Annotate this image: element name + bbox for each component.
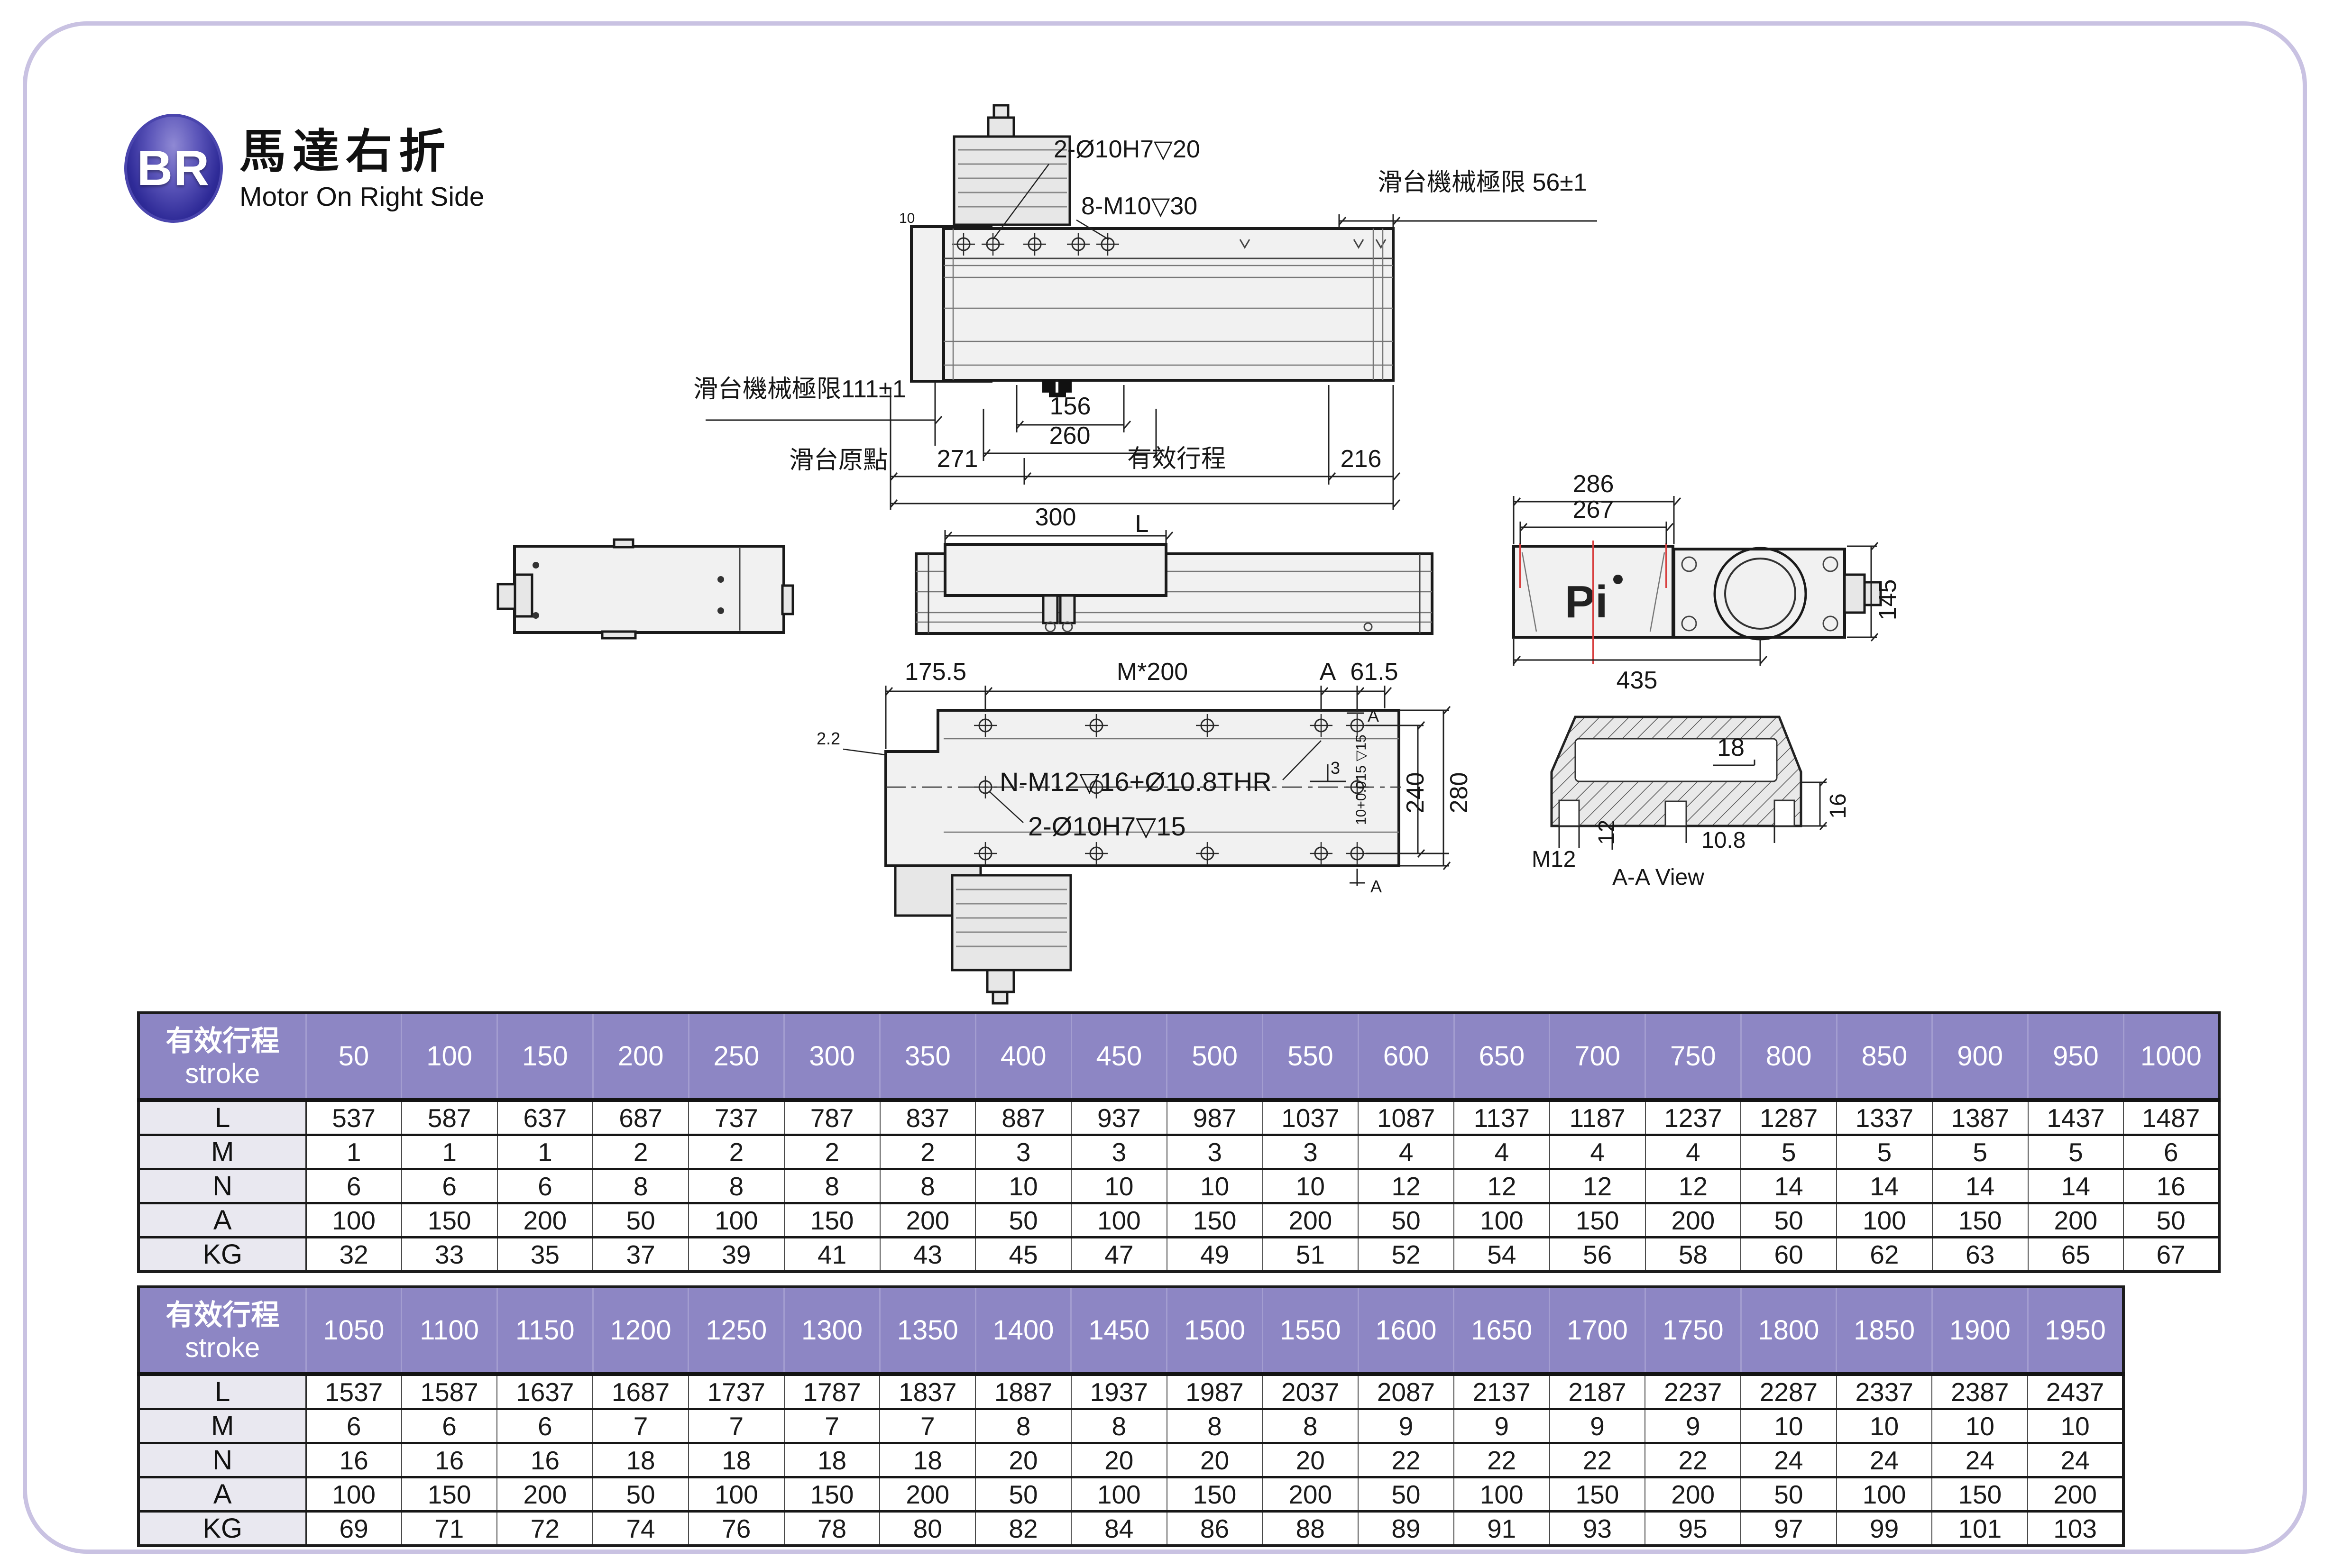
row-label: M	[138, 1409, 306, 1443]
table-cell: 150	[1932, 1203, 2028, 1238]
table-cell: 8	[593, 1169, 689, 1203]
table-cell: 150	[784, 1203, 880, 1238]
table-cell: 2337	[1837, 1374, 1932, 1409]
table-cell: 10	[1167, 1169, 1263, 1203]
table-cell: 7	[593, 1409, 689, 1443]
table-row: L153715871637168717371787183718871937198…	[138, 1374, 2123, 1409]
dim-m12: M12	[1532, 847, 1576, 872]
table-cell: 200	[497, 1203, 593, 1238]
table-cell: 1837	[880, 1374, 975, 1409]
stroke-column-header: 1350	[880, 1287, 975, 1374]
table-cell: 2	[784, 1135, 880, 1169]
table-cell: 9	[1358, 1409, 1454, 1443]
stroke-column-header: 100	[402, 1013, 497, 1100]
row-label: KG	[138, 1238, 306, 1272]
table-cell: 2237	[1645, 1374, 1741, 1409]
stroke-column-header: 400	[975, 1013, 1071, 1100]
table-cell: 14	[1837, 1169, 1932, 1203]
stroke-column-header: 1700	[1550, 1287, 1645, 1374]
table-cell: 24	[2028, 1443, 2123, 1477]
row-label: L	[138, 1374, 306, 1409]
table-cell: 62	[1837, 1238, 1932, 1272]
table-cell: 1	[306, 1135, 402, 1169]
table-cell: 2437	[2028, 1374, 2123, 1409]
table-cell: 1037	[1263, 1100, 1359, 1135]
section-a-label: A	[1320, 658, 1336, 686]
table-cell: 4	[1358, 1135, 1454, 1169]
table-cell: 2287	[1741, 1374, 1837, 1409]
table-cell: 9	[1550, 1409, 1645, 1443]
table-cell: 2037	[1262, 1374, 1358, 1409]
dim-16: 16	[1826, 793, 1851, 818]
table-cell: 200	[497, 1477, 593, 1512]
table-row: A100150200501001502005010015020050100150…	[138, 1203, 2219, 1238]
table-cell: 69	[306, 1512, 402, 1546]
table-cell: 50	[593, 1203, 689, 1238]
table-cell: 150	[1167, 1477, 1263, 1512]
table-row: M66677778888999910101010	[138, 1409, 2123, 1443]
table-cell: 3	[1167, 1135, 1263, 1169]
table-cell: 987	[1167, 1100, 1263, 1135]
table-cell: 200	[2028, 1203, 2124, 1238]
table-cell: 737	[689, 1100, 784, 1135]
table-cell: 10	[1263, 1169, 1359, 1203]
table-cell: 14	[2028, 1169, 2124, 1203]
table-cell: 1987	[1167, 1374, 1263, 1409]
table-cell: 89	[1358, 1512, 1454, 1546]
stroke-column-header: 1750	[1645, 1287, 1741, 1374]
table-cell: 97	[1741, 1512, 1837, 1546]
dowel-callout: 2-Ø10H7▽15	[1028, 811, 1186, 841]
table-cell: 12	[1550, 1169, 1645, 1203]
table-cell: 18	[880, 1443, 975, 1477]
table-cell: 6	[306, 1409, 402, 1443]
table-cell: 16	[306, 1443, 402, 1477]
table-cell: 1637	[497, 1374, 593, 1409]
technical-drawings: 10 2-Ø10H7▽20 8-M10▽30 滑台機械極限 56±1 滑台機械極…	[0, 0, 2352, 1005]
table-cell: 100	[1454, 1203, 1550, 1238]
table-cell: 150	[402, 1477, 497, 1512]
stroke-column-header: 1600	[1358, 1287, 1454, 1374]
table-cell: 43	[880, 1238, 976, 1272]
stroke-column-header: 1650	[1454, 1287, 1550, 1374]
table-cell: 91	[1454, 1512, 1550, 1546]
table-cell: 100	[306, 1477, 402, 1512]
table-cell: 537	[306, 1100, 402, 1135]
table-cell: 1437	[2028, 1100, 2124, 1135]
table-cell: 4	[1550, 1135, 1645, 1169]
table-cell: 50	[2123, 1203, 2219, 1238]
table-cell: 50	[593, 1477, 689, 1512]
middle-side-view-drawing: 300	[916, 504, 1432, 633]
table-cell: 637	[497, 1100, 593, 1135]
table-cell: 837	[880, 1100, 976, 1135]
table-cell: 5	[2028, 1135, 2124, 1169]
table-cell: 76	[689, 1512, 784, 1546]
table-cell: 35	[497, 1238, 593, 1272]
table-row: N16161618181818202020202222222224242424	[138, 1443, 2123, 1477]
table-cell: 8	[880, 1169, 976, 1203]
stroke-column-header: 1450	[1071, 1287, 1167, 1374]
stroke-column-header: 300	[784, 1013, 880, 1100]
table-cell: 200	[1263, 1203, 1359, 1238]
table-cell: 65	[2028, 1238, 2124, 1272]
table-cell: 20	[1262, 1443, 1358, 1477]
table-cell: 41	[784, 1238, 880, 1272]
dim-2-2: 2.2	[817, 729, 840, 748]
table-cell: 22	[1358, 1443, 1454, 1477]
table-cell: 50	[1358, 1477, 1454, 1512]
section-a-marker-top: A	[1368, 706, 1379, 725]
dim-300: 300	[1035, 504, 1076, 531]
table-cell: 45	[975, 1238, 1071, 1272]
table-cell: 54	[1454, 1238, 1550, 1272]
table-cell: 22	[1454, 1443, 1550, 1477]
table-cell: 82	[975, 1512, 1071, 1546]
stroke-column-header: 1400	[975, 1287, 1071, 1374]
table-cell: 10	[975, 1169, 1071, 1203]
table-row: N666888810101010121212121414141416	[138, 1169, 2219, 1203]
table-cell: 33	[402, 1238, 497, 1272]
table-cell: 150	[1550, 1477, 1645, 1512]
aa-section-view-drawing: 18 16 M12 12 10.8 A-A View	[1532, 717, 1851, 890]
table-cell: 100	[1071, 1477, 1167, 1512]
stroke-column-header: 150	[497, 1013, 593, 1100]
table-cell: 8	[784, 1169, 880, 1203]
row-label: KG	[138, 1512, 306, 1546]
table-row: A100150200501001502005010015020050100150…	[138, 1477, 2123, 1512]
table-cell: 16	[497, 1443, 593, 1477]
table-cell: 20	[1071, 1443, 1167, 1477]
table-cell: 587	[402, 1100, 497, 1135]
table-cell: 24	[1837, 1443, 1932, 1477]
table-cell: 6	[497, 1409, 593, 1443]
table-cell: 8	[1071, 1409, 1167, 1443]
table-cell: 18	[784, 1443, 880, 1477]
table-cell: 9	[1645, 1409, 1741, 1443]
table-cell: 150	[1550, 1203, 1645, 1238]
table-cell: 71	[402, 1512, 497, 1546]
table-cell: 12	[1454, 1169, 1550, 1203]
table-cell: 10	[1741, 1409, 1837, 1443]
row-label: N	[138, 1443, 306, 1477]
table-cell: 72	[497, 1512, 593, 1546]
table-cell: 95	[1645, 1512, 1741, 1546]
end-view-drawing: Pi 286 267 435 145	[1514, 470, 1902, 694]
table-cell: 50	[1741, 1203, 1837, 1238]
table-cell: 37	[593, 1238, 689, 1272]
tolerance-note: 10+0.015 ▽15	[1353, 734, 1369, 825]
table-cell: 52	[1358, 1238, 1454, 1272]
table-cell: 2137	[1454, 1374, 1550, 1409]
table-cell: 60	[1741, 1238, 1837, 1272]
stroke-column-header: 1050	[306, 1287, 402, 1374]
aa-view-caption: A-A View	[1612, 865, 1704, 890]
dim-61-5: 61.5	[1350, 658, 1398, 686]
table-cell: 22	[1550, 1443, 1645, 1477]
table-row: KG69717274767880828486888991939597991011…	[138, 1512, 2123, 1546]
table-cell: 84	[1071, 1512, 1167, 1546]
table-cell: 6	[497, 1169, 593, 1203]
table-cell: 10	[2028, 1409, 2123, 1443]
table-cell: 7	[689, 1409, 784, 1443]
dim-260: 260	[1049, 422, 1091, 449]
table-cell: 1737	[689, 1374, 784, 1409]
table-cell: 47	[1071, 1238, 1167, 1272]
table-cell: 2	[880, 1135, 976, 1169]
table-cell: 1087	[1358, 1100, 1454, 1135]
hole-callout-2: 8-M10▽30	[1081, 193, 1197, 220]
stroke-column-header: 1500	[1167, 1287, 1263, 1374]
stroke-column-header: 1250	[689, 1287, 784, 1374]
dim-156: 156	[1050, 393, 1091, 420]
stroke-header-cell: 有效行程stroke	[138, 1287, 306, 1374]
table-cell: 74	[593, 1512, 689, 1546]
table-cell: 5	[1741, 1135, 1837, 1169]
dim-145: 145	[1874, 579, 1902, 621]
table-cell: 6	[402, 1409, 497, 1443]
table-cell: 6	[306, 1169, 402, 1203]
dim-267: 267	[1573, 496, 1614, 523]
table-cell: 51	[1263, 1238, 1359, 1272]
table-cell: 100	[689, 1203, 784, 1238]
table-cell: 50	[1358, 1203, 1454, 1238]
table-cell: 39	[689, 1238, 784, 1272]
table-cell: 22	[1645, 1443, 1741, 1477]
table-cell: 1487	[2123, 1100, 2219, 1135]
table-cell: 20	[975, 1443, 1071, 1477]
origin-label: 滑台原點	[789, 447, 888, 474]
hole-callout-1: 2-Ø10H7▽20	[1054, 136, 1200, 163]
table-cell: 887	[975, 1100, 1071, 1135]
stroke-column-header: 1300	[784, 1287, 880, 1374]
stroke-column-header: 250	[689, 1013, 784, 1100]
table-cell: 200	[880, 1477, 975, 1512]
table-cell: 150	[784, 1477, 880, 1512]
row-label: L	[138, 1100, 306, 1135]
table-cell: 8	[975, 1409, 1071, 1443]
table-cell: 1537	[306, 1374, 402, 1409]
table-cell: 49	[1167, 1238, 1263, 1272]
table-cell: 100	[1454, 1477, 1550, 1512]
bottom-view-drawing: 175.5 M*200 A 61.5 A 2.2 N-M12▽16+Ø10.8T…	[817, 658, 1473, 1003]
table-cell: 99	[1837, 1512, 1932, 1546]
stroke-header-cell: 有效行程stroke	[138, 1013, 306, 1100]
table-cell: 8	[1167, 1409, 1263, 1443]
dim-280: 280	[1445, 772, 1473, 814]
stroke-column-header: 1950	[2028, 1287, 2123, 1374]
table-cell: 50	[975, 1203, 1071, 1238]
table-cell: 5	[1837, 1135, 1932, 1169]
table-cell: 63	[1932, 1238, 2028, 1272]
table-cell: 6	[2123, 1135, 2219, 1169]
limit-left-label: 滑台機械極限111±1	[693, 376, 906, 403]
limit-right-label: 滑台機械極限 56±1	[1378, 169, 1587, 196]
table-cell: 200	[1645, 1477, 1741, 1512]
table-cell: 200	[1262, 1477, 1358, 1512]
stroke-table-1: 有效行程stroke501001502002503003504004505005…	[137, 1011, 2221, 1273]
row-label: N	[138, 1169, 306, 1203]
table-cell: 88	[1262, 1512, 1358, 1546]
table-cell: 4	[1645, 1135, 1741, 1169]
table-cell: 100	[1071, 1203, 1167, 1238]
table-cell: 10	[1071, 1169, 1167, 1203]
stroke-column-header: 700	[1550, 1013, 1645, 1100]
table-cell: 67	[2123, 1238, 2219, 1272]
dim-L: L	[1135, 510, 1149, 538]
stroke-column-header: 1100	[402, 1287, 497, 1374]
table-cell: 200	[1645, 1203, 1741, 1238]
table-row: L537587637687737787837887937987103710871…	[138, 1100, 2219, 1135]
stroke-column-header: 550	[1263, 1013, 1359, 1100]
dim-271: 271	[937, 445, 978, 473]
table-cell: 2187	[1550, 1374, 1645, 1409]
table-cell: 6	[402, 1169, 497, 1203]
row-label: M	[138, 1135, 306, 1169]
table-cell: 16	[2123, 1169, 2219, 1203]
table-cell: 7	[880, 1409, 975, 1443]
table-cell: 24	[1741, 1443, 1837, 1477]
dim-216: 216	[1341, 445, 1382, 473]
stroke-column-header: 750	[1645, 1013, 1741, 1100]
table-cell: 56	[1550, 1238, 1645, 1272]
dim-175-5: 175.5	[905, 658, 966, 686]
table-cell: 7	[784, 1409, 880, 1443]
stroke-column-header: 1900	[1932, 1287, 2028, 1374]
table-cell: 9	[1454, 1409, 1550, 1443]
table-cell: 1587	[402, 1374, 497, 1409]
table-cell: 18	[689, 1443, 784, 1477]
table-cell: 2387	[1932, 1374, 2028, 1409]
table-cell: 3	[1263, 1135, 1359, 1169]
table-cell: 3	[1071, 1135, 1167, 1169]
table-cell: 100	[1837, 1203, 1932, 1238]
thread-callout: N-M12▽16+Ø10.8THR	[1000, 767, 1272, 797]
table-cell: 93	[1550, 1512, 1645, 1546]
table-cell: 8	[1262, 1409, 1358, 1443]
table-cell: 200	[2028, 1477, 2123, 1512]
table-row: KG32333537394143454749515254565860626365…	[138, 1238, 2219, 1272]
table-cell: 101	[1932, 1512, 2028, 1546]
stroke-column-header: 50	[306, 1013, 402, 1100]
table-cell: 150	[1167, 1203, 1263, 1238]
stroke-column-header: 450	[1071, 1013, 1167, 1100]
table-cell: 150	[402, 1203, 497, 1238]
table-cell: 8	[689, 1169, 784, 1203]
stroke-column-header: 600	[1358, 1013, 1454, 1100]
stroke-column-header: 650	[1454, 1013, 1550, 1100]
table-cell: 16	[402, 1443, 497, 1477]
dim-3: 3	[1331, 758, 1340, 778]
table-cell: 4	[1454, 1135, 1550, 1169]
table-cell: 32	[306, 1238, 402, 1272]
table-cell: 1887	[975, 1374, 1071, 1409]
stroke-column-header: 350	[880, 1013, 976, 1100]
rail-body	[944, 229, 1393, 380]
table-cell: 20	[1167, 1443, 1263, 1477]
stroke-column-header: 1850	[1837, 1287, 1932, 1374]
table-cell: 150	[1932, 1477, 2028, 1512]
row-label: A	[138, 1203, 306, 1238]
table-cell: 10	[1837, 1409, 1932, 1443]
table-cell: 1	[497, 1135, 593, 1169]
dim-286: 286	[1573, 470, 1614, 498]
table-cell: 14	[1741, 1169, 1837, 1203]
table-cell: 5	[1932, 1135, 2028, 1169]
dim-18: 18	[1717, 734, 1745, 761]
table-cell: 2	[689, 1135, 784, 1169]
dim-10: 10	[899, 211, 915, 226]
stroke-column-header: 1200	[593, 1287, 689, 1374]
table-cell: 58	[1645, 1238, 1741, 1272]
carriage-block	[945, 544, 1166, 596]
table-cell: 78	[784, 1512, 880, 1546]
table-cell: 10	[1932, 1409, 2028, 1443]
table-cell: 1137	[1454, 1100, 1550, 1135]
stroke-column-header: 950	[2028, 1013, 2124, 1100]
table-row: M11122223333444455556	[138, 1135, 2219, 1169]
table-cell: 200	[880, 1203, 976, 1238]
stroke-table-2: 有效行程stroke105011001150120012501300135014…	[137, 1285, 2125, 1547]
stroke-column-header: 1150	[497, 1287, 593, 1374]
table-cell: 1187	[1550, 1100, 1645, 1135]
table-cell: 1937	[1071, 1374, 1167, 1409]
table-cell: 12	[1358, 1169, 1454, 1203]
stroke-column-header: 1000	[2123, 1013, 2219, 1100]
table-cell: 100	[1837, 1477, 1932, 1512]
stroke-dim-label: 有效行程	[1127, 445, 1226, 473]
table-cell: 103	[2028, 1512, 2123, 1546]
table-cell: 100	[306, 1203, 402, 1238]
table-cell: 14	[1932, 1169, 2028, 1203]
table-cell: 24	[1932, 1443, 2028, 1477]
left-side-view-drawing	[498, 540, 793, 638]
table-cell: 937	[1071, 1100, 1167, 1135]
dim-435: 435	[1617, 667, 1658, 694]
stroke-column-header: 1800	[1741, 1287, 1837, 1374]
stroke-column-header: 200	[593, 1013, 689, 1100]
table-cell: 100	[689, 1477, 784, 1512]
section-a-marker-bottom: A	[1370, 877, 1382, 896]
table-cell: 1287	[1741, 1100, 1837, 1135]
table-cell: 1387	[1932, 1100, 2028, 1135]
table-cell: 1237	[1645, 1100, 1741, 1135]
table-cell: 50	[1741, 1477, 1837, 1512]
table-cell: 2087	[1358, 1374, 1454, 1409]
stroke-column-header: 500	[1167, 1013, 1263, 1100]
table-cell: 1	[402, 1135, 497, 1169]
stroke-column-header: 1550	[1262, 1287, 1358, 1374]
dim-12: 12	[1594, 820, 1619, 845]
table-cell: 687	[593, 1100, 689, 1135]
table-cell: 50	[975, 1477, 1071, 1512]
dim-10-8: 10.8	[1701, 828, 1746, 853]
stroke-column-header: 800	[1741, 1013, 1837, 1100]
pi-logo: Pi	[1565, 577, 1608, 627]
table-cell: 12	[1645, 1169, 1741, 1203]
stroke-column-header: 900	[1932, 1013, 2028, 1100]
dim-240: 240	[1402, 772, 1429, 814]
table-cell: 1687	[593, 1374, 689, 1409]
stroke-column-header: 850	[1837, 1013, 1932, 1100]
dim-pitch: M*200	[1117, 658, 1188, 686]
table-cell: 787	[784, 1100, 880, 1135]
table-cell: 1787	[784, 1374, 880, 1409]
table-cell: 18	[593, 1443, 689, 1477]
table-cell: 1337	[1837, 1100, 1932, 1135]
table-cell: 3	[975, 1135, 1071, 1169]
table-cell: 80	[880, 1512, 975, 1546]
